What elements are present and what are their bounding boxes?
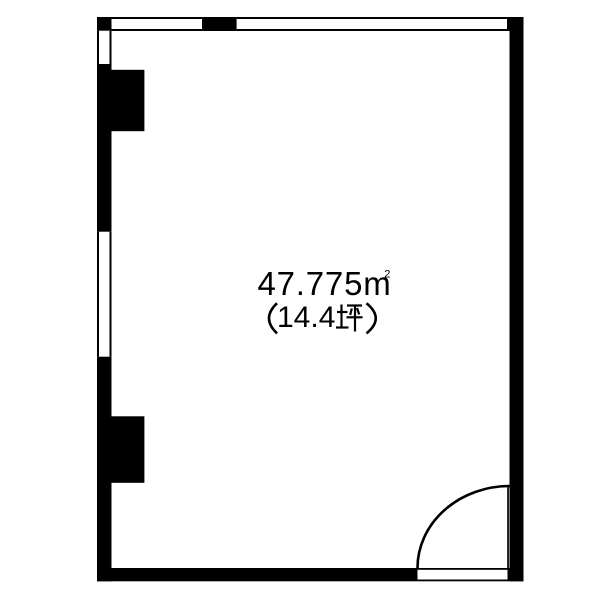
svg-text:2: 2 (384, 268, 390, 280)
svg-text:47.775m: 47.775m (258, 265, 392, 302)
svg-text:14.4: 14.4 (277, 301, 335, 334)
